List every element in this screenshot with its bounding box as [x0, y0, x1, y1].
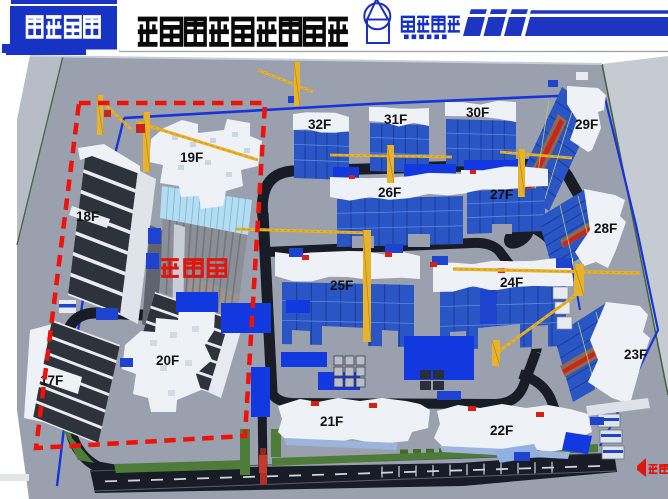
svg-text:32F: 32F — [308, 117, 331, 132]
svg-text:24F: 24F — [500, 275, 523, 290]
svg-text:27F: 27F — [490, 187, 513, 202]
svg-text:22F: 22F — [490, 423, 513, 438]
svg-text:26F: 26F — [378, 185, 401, 200]
svg-text:28F: 28F — [594, 221, 617, 236]
svg-text:31F: 31F — [384, 112, 407, 127]
svg-text:20F: 20F — [156, 353, 179, 368]
svg-text:30F: 30F — [466, 105, 489, 120]
svg-text:23F: 23F — [624, 347, 647, 362]
svg-text:21F: 21F — [320, 414, 343, 429]
svg-text:19F: 19F — [180, 150, 203, 165]
svg-text:25F: 25F — [330, 278, 353, 293]
svg-text:18F: 18F — [76, 209, 99, 224]
svg-text:29F: 29F — [575, 117, 598, 132]
